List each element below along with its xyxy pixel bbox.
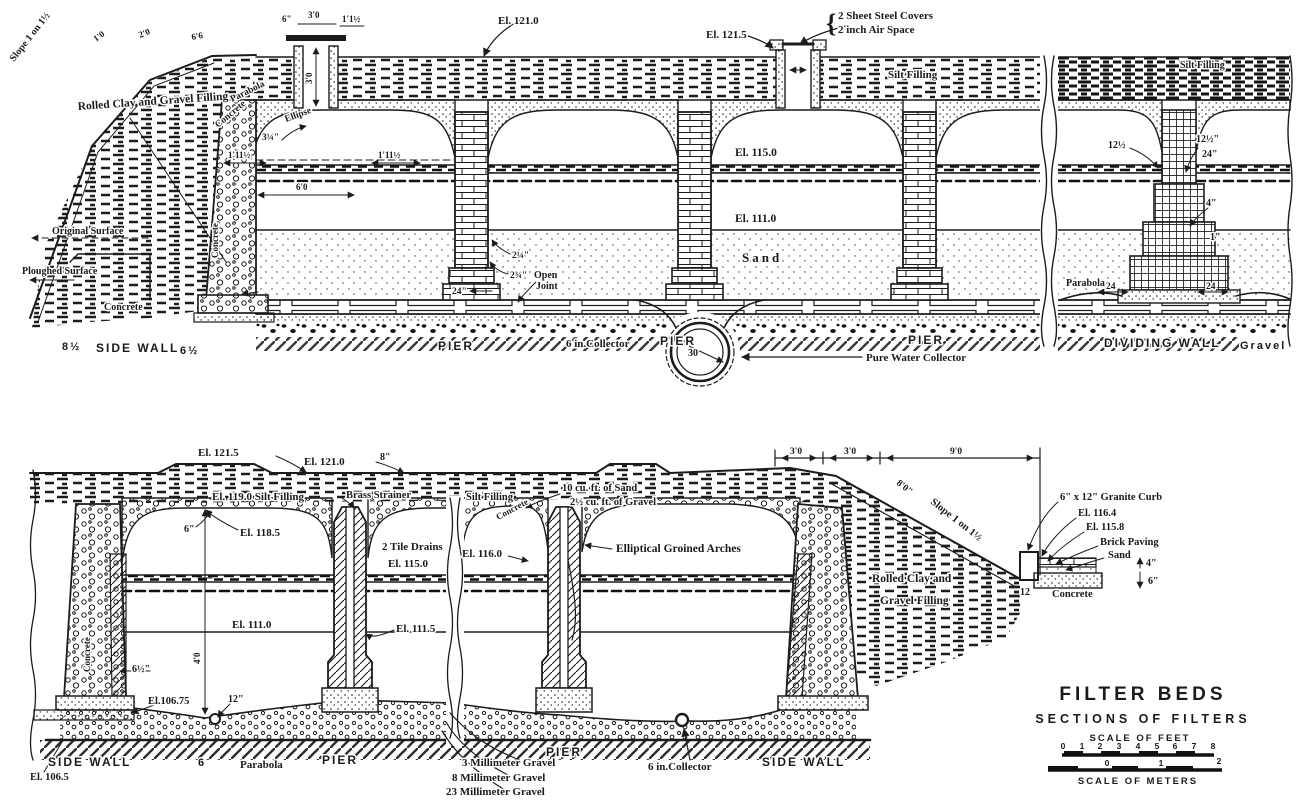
label-dim-1-0: 1'0 (91, 28, 107, 43)
feet-tick-6: 6 (1173, 741, 1180, 751)
label-el-121-5: El. 121.5 (706, 29, 747, 41)
bottom-section-drawings: El. 121.5 El. 121.0 8" El. 119.0 Silt Fi… (30, 447, 1162, 798)
label-dim-6h-b: 6½" (132, 664, 150, 675)
label-dim-30: 30 (688, 348, 698, 359)
label-brace: { (826, 9, 836, 38)
label-pure-water: Pure Water Collector (866, 352, 966, 364)
drawing-canvas: Slope 1 on 1½ Rolled Clay and Gravel Fil… (0, 0, 1297, 800)
label-original-surface: Original Surface (52, 226, 124, 237)
feet-tick-5: 5 (1155, 741, 1162, 751)
label-brass-strainer: Brass Strainer (346, 490, 411, 501)
label-el-121-0: El. 121.0 (498, 15, 539, 27)
label-sand-cuft: 10 cu. ft. of Sand (562, 483, 637, 494)
scale-meters-bar: 0 1 2 (1048, 756, 1223, 771)
label-dim-4in-b: 4" (1146, 558, 1157, 569)
label-dim-2t: 2¾" (510, 271, 527, 281)
feet-tick-2: 2 (1098, 741, 1105, 751)
feet-tick-8: 8 (1211, 741, 1218, 751)
top-section-drawing: Slope 1 on 1½ Rolled Clay and Gravel Fil… (8, 9, 1292, 392)
label-side-wall: SIDE WALL (96, 341, 179, 355)
label-dim-8in-b: 8" (380, 452, 391, 463)
label-brick-paving: Brick Paving (1100, 537, 1159, 548)
feet-tick-0: 0 (1061, 741, 1068, 751)
label-el-106-5: El. 106.5 (30, 772, 69, 783)
label-pier-bl: PIER (322, 753, 358, 767)
feet-tick-1: 1 (1080, 741, 1087, 751)
feet-tick-3: 3 (1117, 741, 1124, 751)
label-slope: Slope 1 on 1½ (8, 10, 53, 64)
label-gravel-cuft: 2½ cu. ft. of Gravel (570, 497, 656, 508)
label-dim-12-rb: 12 (1020, 587, 1030, 598)
label-el-121-5-b: El. 121.5 (198, 447, 239, 459)
label-groined: Elliptical Groined Arches (616, 543, 741, 555)
label-dim-3-0-b: 3'0 (844, 447, 856, 457)
label-dim-24-r: 24" (1202, 149, 1218, 160)
drawing-subtitle: SECTIONS OF FILTERS (1035, 712, 1250, 726)
label-open-joint-1: Open (534, 270, 558, 281)
label-dim-6in-b: 6" (184, 524, 195, 535)
label-dim-3q: 3¼" (262, 133, 279, 143)
label-concrete-wall-v: Concrete (210, 223, 220, 258)
label-dim-1-1h: 1'1½ (342, 14, 361, 24)
label-sand: Sand (742, 250, 782, 265)
label-gravel-3: 3 Millimeter Gravel (462, 757, 555, 769)
label-dim-2-0: 2'0 (137, 26, 152, 40)
label-dim-1-r: 1" (1210, 232, 1221, 243)
label-dim-8-0: 8'0" (894, 478, 914, 497)
label-granite-curb: 6" x 12" Granite Curb (1060, 492, 1162, 503)
label-dim-2q: 2¼" (512, 251, 529, 261)
label-silt-filling-b: Silt Filling (466, 492, 514, 503)
label-collector-6in-b: 6 in.Collector (648, 761, 712, 773)
label-concrete-footing: Concrete (104, 302, 143, 313)
label-dim-12h-l: 12½ (1108, 140, 1126, 151)
label-el-115-8: El. 115.8 (1086, 522, 1124, 533)
label-ploughed-surface: Ploughed Surface (22, 266, 98, 277)
label-dim-12in-b: 12" (228, 694, 244, 705)
label-dim-6h: 6½ (180, 345, 199, 357)
label-dim-6-bl: 6 (198, 757, 206, 769)
label-dim-1-11-r: 1'11½ (378, 150, 401, 160)
filter-beds-drawing: Slope 1 on 1½ Rolled Clay and Gravel Fil… (0, 0, 1297, 800)
label-dim-24-b: 24 (1206, 282, 1216, 292)
label-el-119-silt: El. 119.0 Silt Filling (212, 491, 304, 503)
label-silt-filling: Silt Filling (888, 69, 938, 81)
label-dim-6in: 6" (282, 14, 292, 24)
label-dim-8h: 8½ (62, 341, 81, 353)
drawing-title: FILTER BEDS (1059, 684, 1226, 705)
label-covers-1: 2 Sheet Steel Covers (838, 10, 934, 22)
label-rolled-clay-b1: Rolled Clay and (872, 573, 952, 585)
label-dim-6in-rb: 6" (1148, 576, 1159, 587)
label-dim-3-0: 3'0 (308, 10, 320, 20)
meter-tick-0: 0 (1105, 758, 1112, 768)
label-concrete-wall-b: Concrete (82, 637, 92, 672)
label-rolled-clay-b2: Gravel Filling (880, 595, 949, 607)
label-covers-2: 2 inch Air Space (838, 24, 915, 36)
label-dim-4-0-v: 4'0 (192, 652, 202, 664)
label-tile-drains: 2 Tile Drains (382, 541, 443, 553)
label-el-111-0: El. 111.0 (735, 213, 776, 225)
label-el-106-75: El.106.75 (148, 696, 189, 707)
meter-tick-2: 2 (1217, 756, 1224, 766)
label-sand-b: Sand (1108, 550, 1131, 561)
label-dim-12h-r: 12½" (1196, 134, 1219, 145)
label-pier-3: PIER (908, 333, 944, 347)
label-pier-2: PIER (660, 334, 696, 348)
label-el-115-0: El. 115.0 (735, 147, 777, 159)
label-dim-1-11-l: 1'11½ (228, 150, 251, 160)
label-parabola-b: Parabola (240, 759, 283, 771)
label-dividing-wall: DIVIDING WALL (1104, 336, 1221, 350)
label-gravel: Gravel (1240, 340, 1286, 352)
title-block: FILTER BEDS SECTIONS OF FILTERS SCALE OF… (1035, 684, 1250, 787)
label-dim-6-0: 6'0 (296, 182, 308, 192)
meter-tick-1: 1 (1159, 758, 1166, 768)
label-dim-3-0-a: 3'0 (790, 447, 802, 457)
label-dim-4-r: 4" (1206, 198, 1217, 209)
label-side-wall-bm: SIDE WALL (762, 755, 845, 769)
feet-tick-4: 4 (1136, 741, 1143, 751)
label-gravel-23: 23 Millimeter Gravel (446, 786, 545, 798)
label-el-116-4: El. 116.4 (1078, 508, 1117, 519)
label-open-joint-2: Joint (536, 281, 558, 292)
label-el-121-0-b: El. 121.0 (304, 456, 345, 468)
label-parabola-r: Parabola (1066, 278, 1105, 289)
label-el-116-0: El. 116.0 (462, 548, 503, 560)
silt-filling-band (256, 57, 1290, 100)
side-wall-bottom-left (34, 504, 134, 720)
label-dim-9-0: 9'0 (950, 447, 962, 457)
label-dim-24-a: 24 (1106, 282, 1116, 292)
label-dim-24in: 24" (452, 287, 467, 297)
label-gravel-8: 8 Millimeter Gravel (452, 772, 545, 784)
label-collector-6in: 6 in.Collector (566, 338, 630, 350)
label-el-111-0-b: El. 111.0 (232, 619, 272, 631)
feet-tick-7: 7 (1192, 741, 1199, 751)
label-concrete-rb: Concrete (1052, 589, 1093, 600)
label-dim-6-6: 6'6 (191, 30, 205, 42)
label-el-118-5: El. 118.5 (240, 527, 281, 539)
label-silt-filling-r: Silt Filling (1180, 60, 1225, 71)
label-side-wall-bl: SIDE WALL (48, 755, 131, 769)
bl-center-dim (198, 510, 212, 714)
label-dim-3-0-v: 3'0 (304, 72, 314, 84)
scale-feet-bar: 0 1 2 3 4 5 6 7 8 (1061, 741, 1218, 756)
label-pier-1: PIER (438, 339, 474, 353)
scale-meters-label: SCALE OF METERS (1078, 776, 1198, 787)
label-el-111-5: El. 111.5 (396, 623, 436, 635)
label-el-115-0-b: El. 115.0 (388, 558, 429, 570)
